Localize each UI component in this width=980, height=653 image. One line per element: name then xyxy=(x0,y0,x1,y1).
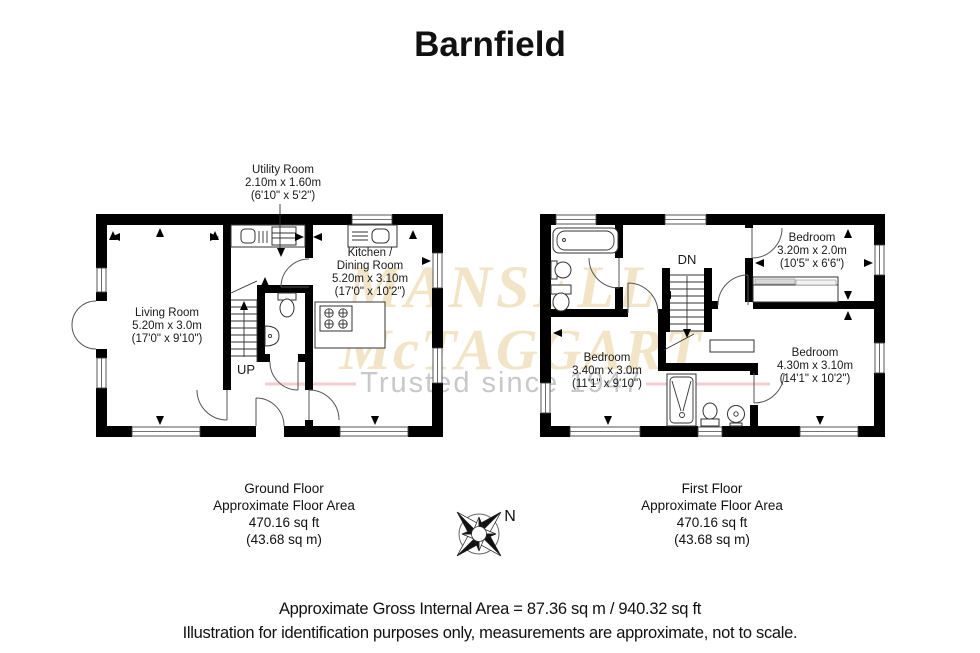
caption-line: Approximate Floor Area xyxy=(641,498,783,513)
footer-disclaimer-line: Illustration for identification purposes… xyxy=(183,624,798,642)
caption-line: Ground Floor xyxy=(244,481,324,496)
label-line: (17'0" x 10'2") xyxy=(335,286,406,298)
label-line: (11'1" x 9'10") xyxy=(572,378,642,390)
caption-line: First Floor xyxy=(682,481,743,496)
label-line: (10'5" x 6'6") xyxy=(780,258,845,270)
stairs-down-label: DN xyxy=(678,252,697,267)
bedroom1-label: Bedroom 3.20m x 2.0m (10'5" x 6'6") xyxy=(777,232,847,270)
shower-room-sink xyxy=(728,406,745,423)
bedroom1-wardrobe xyxy=(753,277,838,302)
compass-north-label: N xyxy=(504,508,516,525)
living-room-door xyxy=(197,390,227,420)
label-line: 2.10m x 1.60m xyxy=(245,177,321,189)
french-door-leaf xyxy=(72,325,96,349)
label-line: 4.30m x 3.10m xyxy=(777,360,853,372)
wc-fixtures xyxy=(265,293,296,346)
kitchen-top-door xyxy=(281,259,309,287)
wc-door xyxy=(270,362,298,390)
label-line: 5.20m x 3.0m xyxy=(132,320,202,332)
caption-line: (43.68 sq m) xyxy=(246,532,322,547)
label-line: 3.20m x 2.0m xyxy=(777,245,847,257)
bedroom3-door xyxy=(718,275,748,305)
toilet-cistern xyxy=(701,419,719,426)
label-line: 5.20m x 3.10m xyxy=(332,273,408,285)
stairs-up-label: UP xyxy=(237,362,255,377)
first-floor-caption: First Floor Approximate Floor Area 470.1… xyxy=(641,481,783,547)
utility-fixtures xyxy=(231,225,305,247)
label-line: Living Room xyxy=(135,307,199,319)
page-title: Barnfield xyxy=(414,25,566,64)
toilet-bowl xyxy=(553,293,569,311)
floorplan-canvas: MANSELL McTAGGART Trusted since 1947 Bar… xyxy=(0,0,980,653)
compass-rose: N xyxy=(435,490,523,578)
label-line: Dining Room xyxy=(337,260,403,272)
label-line: Kitchen / xyxy=(348,247,394,259)
ground-floor-caption: Ground Floor Approximate Floor Area 470.… xyxy=(213,481,355,547)
shower-room-fixtures xyxy=(667,374,745,426)
label-line: Bedroom xyxy=(792,347,839,359)
footer-area-line: Approximate Gross Internal Area = 87.36 … xyxy=(279,600,702,618)
label-line: Bedroom xyxy=(789,232,836,244)
floorplan-page: MANSELL McTAGGART Trusted since 1947 Bar… xyxy=(0,0,980,653)
stairs-up-arrow xyxy=(240,301,248,310)
label-line: (6'10" x 5'2") xyxy=(251,190,316,202)
french-door-leaf xyxy=(72,301,96,325)
ground-floor-stairs xyxy=(231,281,257,362)
toilet-bowl xyxy=(280,299,294,317)
ground-floor-doors xyxy=(72,259,339,426)
caption-line: Approximate Floor Area xyxy=(213,498,355,513)
label-line: Bedroom xyxy=(584,352,631,364)
compass-star xyxy=(435,490,523,578)
living-room-label: Living Room 5.20m x 3.0m (17'0" x 9'10") xyxy=(132,307,203,345)
caption-line: 470.16 sq ft xyxy=(677,515,748,530)
footer: Approximate Gross Internal Area = 87.36 … xyxy=(183,600,798,642)
bathroom-sink xyxy=(555,262,571,278)
front-door xyxy=(256,398,284,426)
label-line: Utility Room xyxy=(252,164,314,176)
label-line: 3.40m x 3.0m xyxy=(572,365,642,377)
label-line: (14'1" x 10'2") xyxy=(780,373,851,385)
caption-line: (43.68 sq m) xyxy=(674,532,750,547)
label-line: (17'0" x 9'10") xyxy=(132,333,203,345)
shower xyxy=(667,374,696,426)
caption-line: 470.16 sq ft xyxy=(249,515,320,530)
utility-leader-arrow xyxy=(277,248,285,257)
bedroom3-label: Bedroom 4.30m x 3.10m (14'1" x 10'2") xyxy=(777,347,853,385)
landing-cupboard xyxy=(710,340,754,352)
kitchen-bottom-door xyxy=(309,390,339,420)
hob xyxy=(320,306,352,331)
toilet-bowl xyxy=(703,403,717,419)
